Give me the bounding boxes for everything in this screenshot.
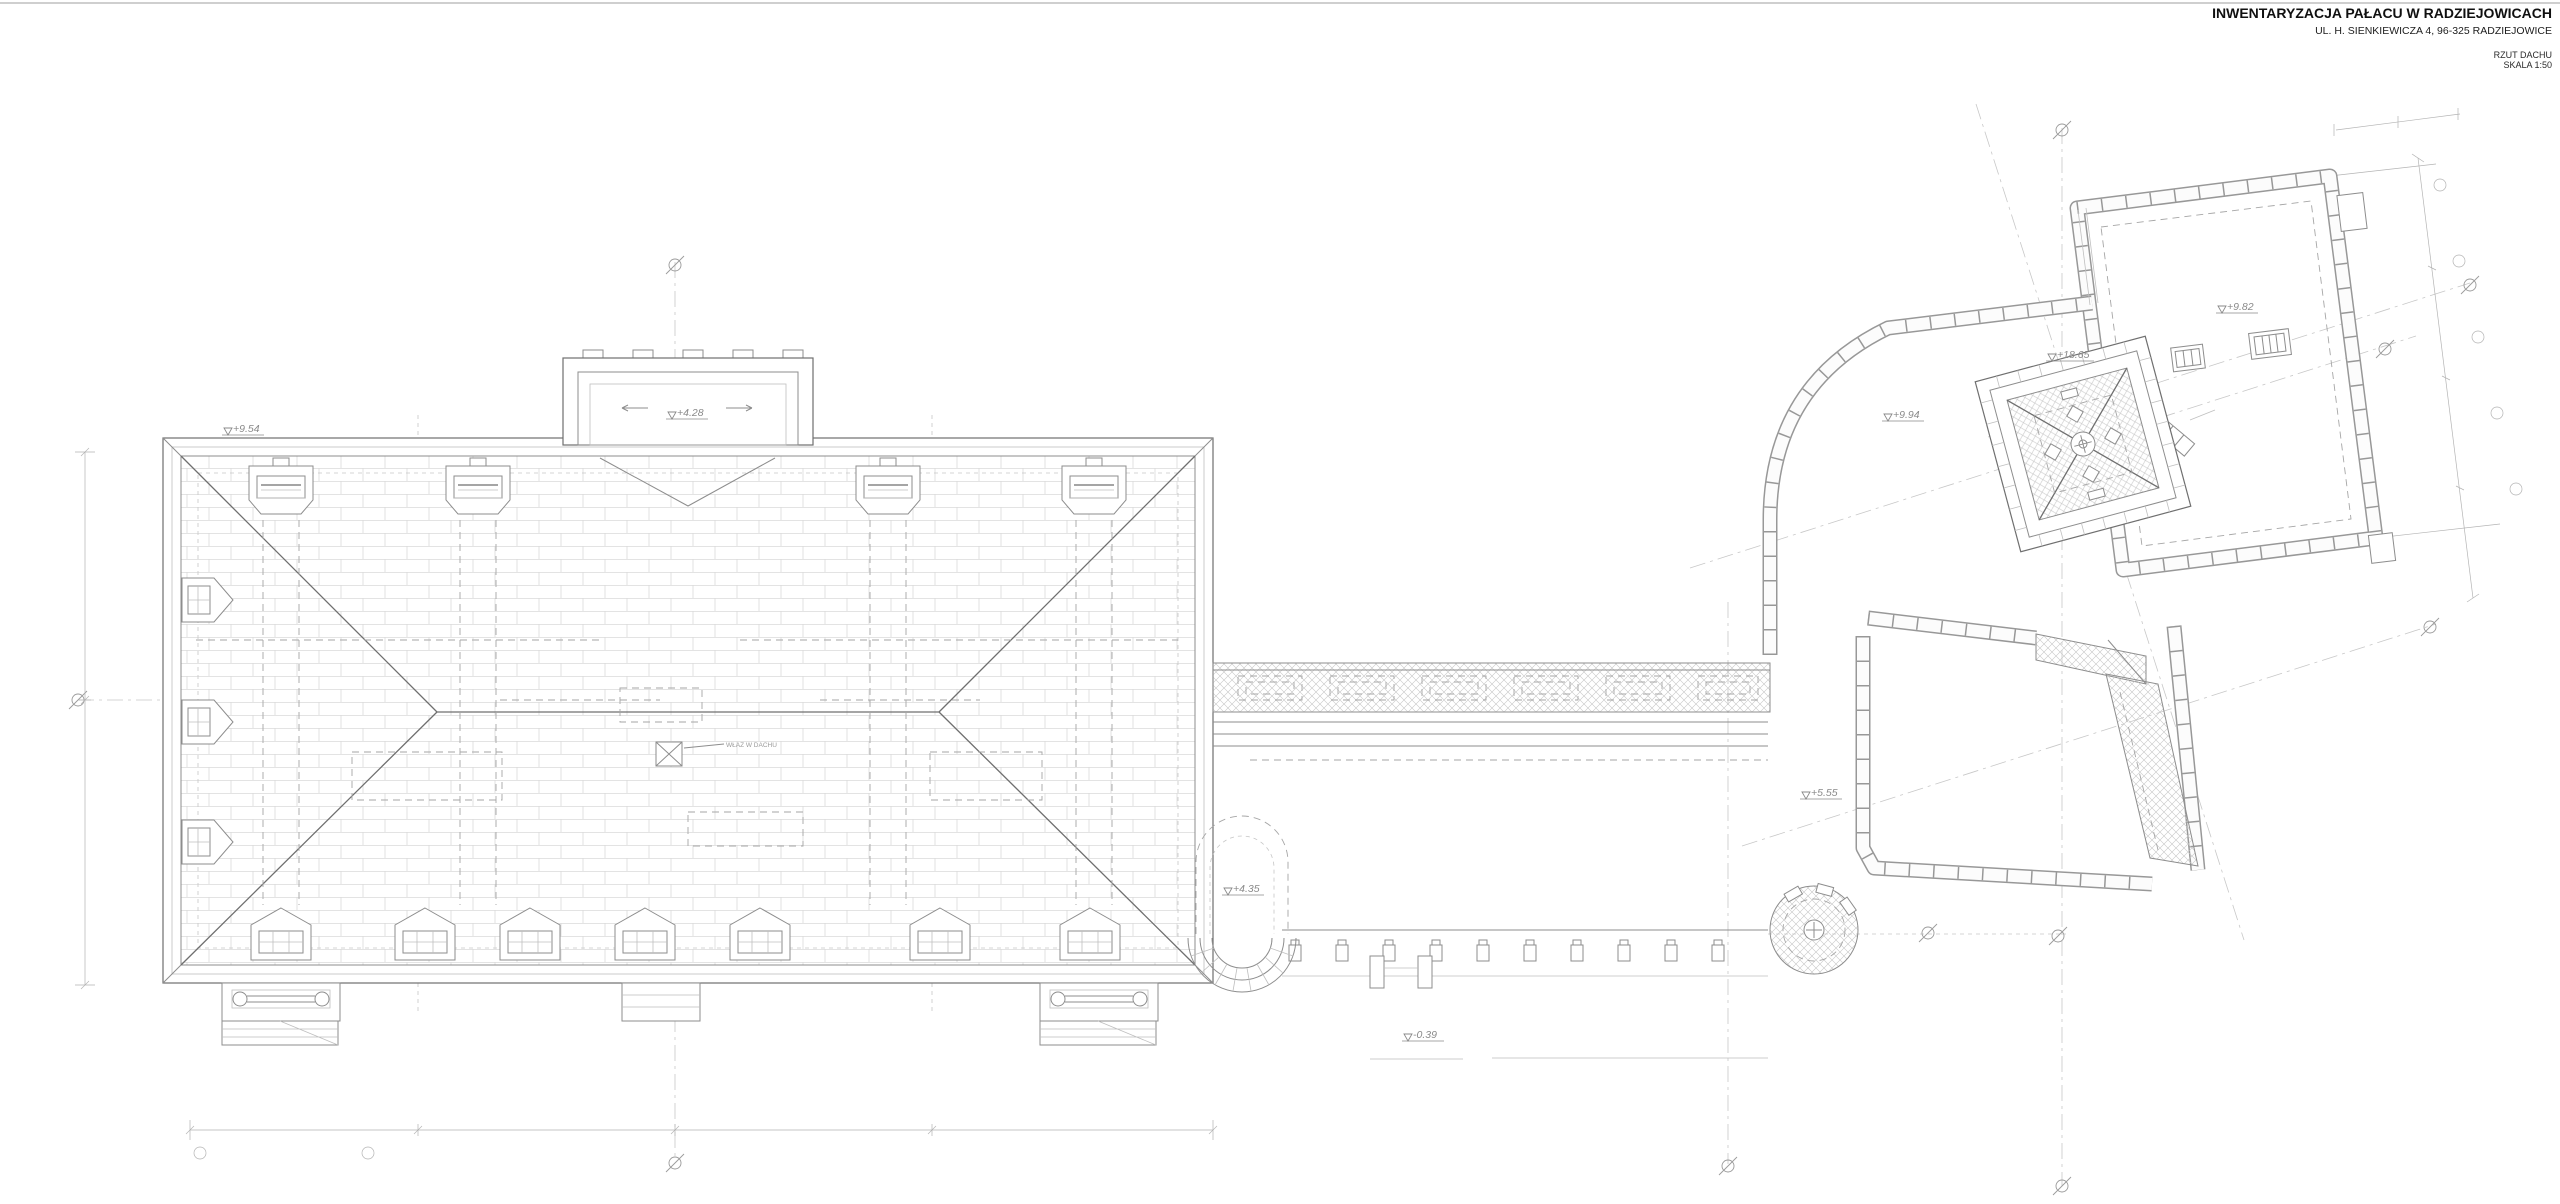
drawing-title: INWENTARYZACJA PAŁACU W RADZIEJOWICACH bbox=[2212, 5, 2552, 21]
porch-southeast bbox=[1040, 983, 1158, 1045]
chimney bbox=[1062, 458, 1126, 514]
steps-south-center bbox=[622, 983, 700, 1021]
level-ne-wing: +9.82 bbox=[2216, 301, 2258, 313]
svg-text:+18.65: +18.65 bbox=[2057, 349, 2090, 361]
level-terrace: -0.39 bbox=[1402, 1029, 1444, 1041]
roof-hatch-label: WŁAZ W DACHU bbox=[726, 742, 777, 749]
title-block: INWENTARYZACJA PAŁACU W RADZIEJOWICACH U… bbox=[2212, 5, 2552, 70]
svg-text:+4.35: +4.35 bbox=[1233, 883, 1260, 895]
chimney bbox=[249, 458, 313, 514]
level-tower: +18.65 bbox=[2046, 349, 2094, 361]
svg-text:+9.94: +9.94 bbox=[1893, 409, 1920, 421]
round-turret bbox=[1770, 883, 1858, 974]
svg-text:+4.28: +4.28 bbox=[677, 407, 704, 419]
main-palace-building: WŁAZ W DACHU bbox=[163, 350, 1213, 1045]
svg-text:-0.39: -0.39 bbox=[1413, 1029, 1437, 1041]
level-link-roof: +9.94 bbox=[1882, 409, 1924, 421]
drawing-name: RZUT DACHU bbox=[2494, 50, 2552, 60]
chimney bbox=[446, 458, 510, 514]
svg-text:+5.55: +5.55 bbox=[1811, 787, 1838, 799]
svg-text:+9.82: +9.82 bbox=[2227, 301, 2254, 313]
level-apse: +4.35 bbox=[1222, 883, 1264, 895]
chimney bbox=[856, 458, 920, 514]
level-courtyard: +5.55 bbox=[1800, 787, 1842, 799]
tower bbox=[1975, 336, 2191, 552]
colonnade bbox=[1282, 930, 1768, 1059]
gallery-link bbox=[1188, 663, 1770, 1059]
drawing-sheet: WŁAZ W DACHU bbox=[0, 0, 2560, 1204]
castle-wing-complex bbox=[1770, 176, 2396, 974]
roof-plan-drawing: WŁAZ W DACHU bbox=[0, 0, 2560, 1204]
svg-text:+9.54: +9.54 bbox=[233, 423, 260, 435]
porch-southwest bbox=[222, 983, 340, 1045]
drawing-scale: SKALA 1:50 bbox=[2503, 60, 2552, 70]
level-main-roof: +9.54 bbox=[222, 423, 264, 435]
drawing-address: UL. H. SIENKIEWICZA 4, 96-325 RADZIEJOWI… bbox=[2315, 25, 2552, 37]
